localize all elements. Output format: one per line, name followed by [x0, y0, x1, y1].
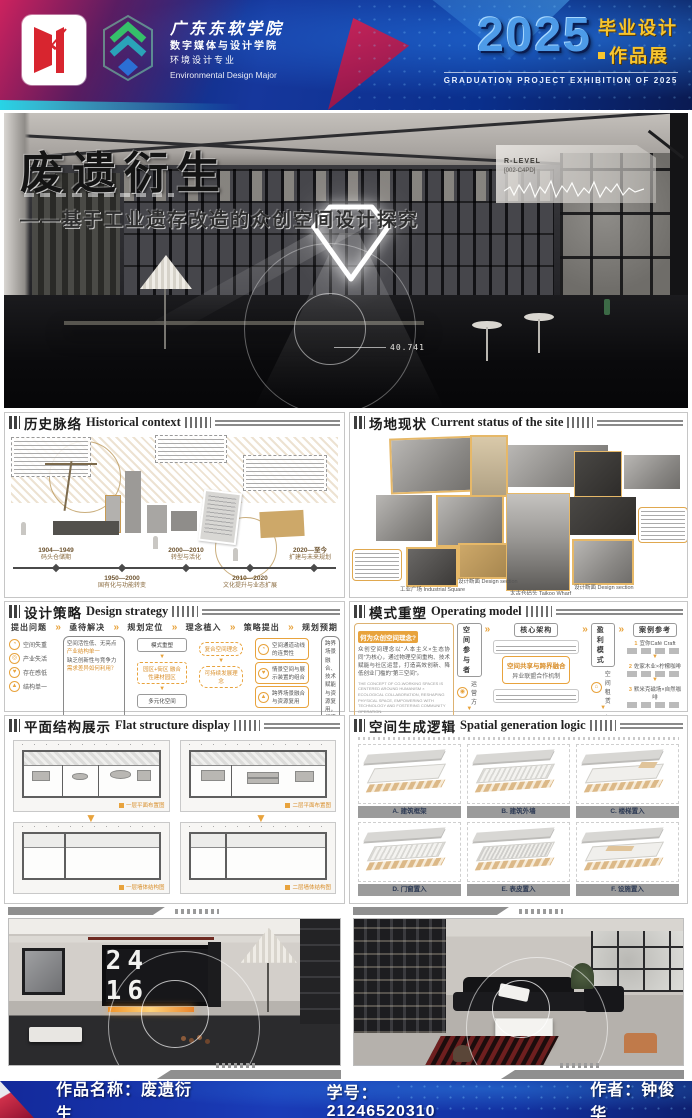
timeline-marker [182, 564, 190, 572]
panel-floor-plans: 平面结构展示 Flat structure display 一层平面布置图 [4, 715, 345, 904]
timeline-marker [310, 564, 318, 572]
section-ticks-icon [172, 606, 198, 617]
core-note [493, 640, 579, 654]
section-rule [264, 723, 340, 729]
axon-cell: E. 表皮置入 [467, 822, 570, 896]
arrow-down-icon: ▼ [199, 658, 242, 664]
section-title-cn: 设计策略 [24, 602, 82, 622]
r-level-title: R-LEVEL [504, 158, 541, 165]
poster: 广东东软学院 数字媒体与设计学院 环境设计专业 Environmental De… [0, 0, 692, 1118]
measure-line [334, 347, 386, 348]
exhibition-title-en: GRADUATION PROJECT EXHIBITION OF 2025 [444, 72, 678, 85]
core-center-box: 空间共享与跨界融合 异业联盟合作机制 [502, 656, 571, 684]
site-photo [574, 451, 622, 497]
case-item: 2佐家木业×柠檬咖啡 [627, 662, 683, 677]
render-frame-left: 24 16 [4, 907, 345, 1079]
timeline-marker [118, 564, 126, 572]
concept-body: 众创空间理念以“人本主义×生态协同”为核心，通过物理空间重构、技术赋能与社区运营… [358, 647, 450, 679]
render-lounge-clock: 24 16 [8, 918, 341, 1066]
section-marker-icon [354, 719, 365, 732]
site-photo [389, 435, 481, 494]
author-field: 作者：钟俊华 [590, 1076, 692, 1118]
section-title-en: Spatial generation logic [460, 718, 586, 733]
measure-value: 40.741 [390, 343, 425, 352]
section-rule [597, 420, 683, 426]
render-lounge-sofa [353, 918, 684, 1066]
step-label: 规划定位 [127, 622, 163, 633]
speech-bubble [638, 507, 687, 543]
r-level-badge: R-LEVEL [002-C4PD] [496, 145, 656, 203]
site-photo [624, 455, 680, 489]
header-right: 2025 毕业设计 作品展 GRADUATION PROJECT EXHIBIT… [444, 14, 678, 85]
r-level-code: [002-C4PD] [504, 168, 648, 174]
section-ticks-icon [567, 417, 593, 428]
hud-ring [294, 293, 366, 365]
section-ticks-icon [526, 606, 552, 617]
title-code-decor [24, 193, 174, 197]
step-label: 提出问题 [11, 622, 47, 633]
section-title-cn: 历史脉络 [24, 413, 82, 433]
site-photo [376, 495, 432, 541]
arrow-down-icon: ▼ [652, 654, 658, 660]
work-subtitle: ——基于工业遗存改造的众创空间设计探究 [20, 205, 419, 232]
waveform-icon [504, 177, 644, 203]
clock-icon: ◔ [258, 644, 269, 655]
site-photo [572, 539, 634, 585]
work-title: 废遗衍生 [20, 137, 228, 201]
floor-plan-grid: 一层平面布置图 二层平面布置图 一层墙体结构图 [5, 734, 344, 900]
strategy-step-flow: 提出问题» 亟待解决» 规划定位» 理念植入» 策略提出» 规划预期 [5, 620, 344, 633]
yellow-square-icon [598, 52, 605, 59]
green-bottle [604, 299, 610, 315]
dotted-rule-decor [358, 737, 679, 740]
arrow-down-icon: ▼ [85, 812, 97, 824]
step-label: 理念植入 [186, 622, 222, 633]
college-logo-icon [100, 14, 156, 86]
frame-hatch-decor [175, 909, 219, 914]
major-name-en: Environmental Design Major [170, 70, 284, 81]
person-icon: ◉ [457, 687, 468, 698]
site-photo [470, 435, 508, 497]
cyan-bar-decor [0, 100, 240, 110]
building [147, 505, 167, 533]
panel-site-status: 场地现状 Current status of the site 太古仓码头 Ta… [349, 412, 688, 598]
section-title-en: Operating model [431, 604, 522, 619]
gear-icon: ◎ [9, 653, 20, 664]
site-photo [436, 495, 504, 547]
frame-bar-decor [8, 907, 165, 915]
tower-building [125, 471, 141, 533]
speech-bubble [352, 549, 402, 581]
chevron-icon: » [55, 623, 61, 633]
lamp-pole [164, 289, 166, 349]
panel-historical-context: 历史脉络 Historical context [4, 412, 345, 598]
triangle-icon: ▲ [9, 681, 20, 692]
crane-jib [45, 463, 97, 465]
header-left: 广东东软学院 数字媒体与设计学院 环境设计专业 Environmental De… [22, 14, 284, 86]
section-title-cn: 模式重塑 [369, 602, 427, 622]
site-caption: 太古仓码头 Taikoo Wharf [510, 589, 571, 595]
arrow-down-icon: ▼ [137, 654, 187, 660]
person-silhouette [21, 522, 26, 535]
render-frame-right [349, 907, 688, 1079]
case-item: 3默米克磁场×自然咖啡 [627, 685, 683, 708]
section-title-cn: 平面结构展示 [24, 716, 111, 736]
header-school-text: 广东东软学院 数字媒体与设计学院 环境设计专业 Environmental De… [170, 20, 284, 80]
section-rule [556, 609, 683, 615]
exhibition-title-cn-2: 作品展 [609, 42, 669, 68]
arrow-down-icon: ▼ [255, 812, 267, 824]
site-caption: 设计断面 Design section [574, 583, 634, 591]
concept-body-en: The concept of co-working spaces is cent… [358, 681, 450, 715]
red-corner-decor [0, 1081, 34, 1118]
arrow-down-icon: ▼ [600, 705, 606, 711]
panel-spatial-logic: 空间生成逻辑 Spatial generation logic A. 建筑框架 … [349, 715, 688, 904]
footer-bar: 作品名称：废遗衍生 学号：21246520310 作者：钟俊华 [0, 1081, 692, 1118]
annotation-note [11, 437, 91, 477]
step-label: 规划预期 [302, 622, 338, 633]
heart-icon: ♥ [9, 667, 20, 678]
timeline-label: 2000—2010转型与活化 [151, 547, 221, 563]
warehouse [171, 511, 197, 531]
frame-hatch-decor [519, 909, 563, 914]
chevron-icon: » [230, 623, 236, 633]
section-title-en: Historical context [86, 415, 181, 430]
triangle-icon: ▲ [258, 692, 269, 703]
core-note [493, 689, 579, 703]
timeline-marker [52, 564, 60, 572]
floor-plan: 一层平面布置图 [13, 740, 170, 812]
section-marker-icon [354, 605, 365, 618]
stool-leg [538, 319, 540, 353]
site-collage: 太古仓码头 Taikoo Wharf 设计断面 Design section 工… [350, 431, 687, 595]
section-rule [620, 723, 683, 729]
hero-render: R-LEVEL [002-C4PD] 废遗衍生 ——基于工业遗存改造的众创空间设… [4, 113, 688, 408]
site-caption: 工业广场 Industrial Square [400, 585, 465, 593]
timeline-label: 2010—2020文化提升与业态扩展 [215, 575, 285, 591]
site-caption: 设计断面 Design section [458, 577, 518, 585]
chevron-icon: » [172, 623, 178, 633]
section-marker-icon [9, 719, 20, 732]
arrow-down-icon: ▼ [652, 677, 658, 683]
work-name-field: 作品名称：废遗衍生 [56, 1076, 209, 1118]
annotation-note [243, 455, 327, 491]
clock-icon: ◔ [9, 639, 20, 650]
annotation-note [155, 435, 227, 463]
person-silhouette [233, 548, 238, 561]
chevron-icon: » [114, 623, 120, 633]
concept-title: 何为众创空间理念? [358, 631, 418, 643]
chevron-icon: » [288, 623, 294, 633]
site-photo [406, 547, 458, 587]
axon-cell: C. 楼梯置入 [576, 744, 679, 818]
site-photo [458, 543, 512, 579]
arrow-down-icon: ▼ [137, 686, 187, 692]
section-rule [202, 609, 340, 615]
step-label: 策略提出 [244, 622, 280, 633]
arrow-down-icon: ▼ [466, 706, 472, 712]
timeline-label: 1904—1949码头仓储期 [21, 547, 91, 563]
stool-leg [486, 327, 488, 361]
train-silhouette [53, 521, 119, 535]
section-ticks-icon [234, 720, 260, 731]
section-title-cn: 场地现状 [369, 413, 427, 433]
section-marker-icon [354, 416, 365, 429]
floor-plan: 二层墙体结构图 [180, 822, 337, 894]
axon-cell: F. 设施置入 [576, 822, 679, 896]
axon-cell: B. 建筑外墙 [467, 744, 570, 818]
exhibition-year: 2025 [477, 14, 592, 57]
floor-plan: 一层墙体结构图 [13, 822, 170, 894]
panel-design-strategy: 设计策略 Design strategy 提出问题» 亟待解决» 规划定位» 理… [4, 601, 345, 712]
school-logo-icon [22, 15, 86, 85]
frame-hatch-decor [560, 1063, 600, 1068]
section-ticks-icon [185, 417, 211, 428]
section-title-en: Design strategy [86, 604, 168, 619]
axon-cell: D. 门窗置入 [358, 822, 461, 896]
axon-cell: A. 建筑框架 [358, 744, 461, 818]
section-title-en: Current status of the site [431, 415, 563, 430]
heart-icon: ♥ [258, 668, 269, 679]
exhibition-title-cn-1: 毕业设计 [598, 14, 678, 40]
history-collage: 1904—1949码头仓储期 1950—2000国有化与功能转变 2000—20… [5, 431, 344, 595]
site-photo [570, 497, 636, 535]
section-ticks-icon [590, 720, 616, 731]
header-banner: 广东东软学院 数字媒体与设计学院 环境设计专业 Environmental De… [0, 0, 692, 110]
frame-bar-decor [353, 907, 509, 915]
timeline-axis [13, 567, 336, 569]
section-rule [215, 420, 340, 426]
timeline-label: 1950—2000国有化与功能转变 [87, 575, 157, 591]
school-name: 广东东软学院 [170, 20, 284, 40]
college-name: 数字媒体与设计学院 [170, 41, 284, 54]
panel-operating-model: 模式重塑 Operating model 何为众创空间理念? 众创空间理念以“人… [349, 601, 688, 712]
step-label: 亟待解决 [69, 622, 105, 633]
timeline-label: 2020—至今扩建与未来规划 [275, 547, 344, 563]
student-id-field: 学号：21246520310 [327, 1079, 487, 1118]
axon-grid: A. 建筑框架 B. 建筑外墙 C. 楼梯置入 D. 门窗置入 E. 表皮置入 [350, 742, 687, 898]
major-name: 环境设计专业 [170, 55, 284, 66]
section-marker-icon [9, 605, 20, 618]
document-photo [198, 489, 242, 545]
case-item: 1宜你Café Craft [627, 639, 683, 654]
floor-plan: 二层平面布置图 [180, 740, 337, 812]
home-icon: ⌂ [591, 682, 602, 693]
frame-hatch-decor [216, 1063, 256, 1068]
section-title-cn: 空间生成逻辑 [369, 716, 456, 736]
section-marker-icon [9, 416, 20, 429]
section-title-en: Flat structure display [115, 718, 230, 733]
warehouse-tan [259, 510, 304, 538]
